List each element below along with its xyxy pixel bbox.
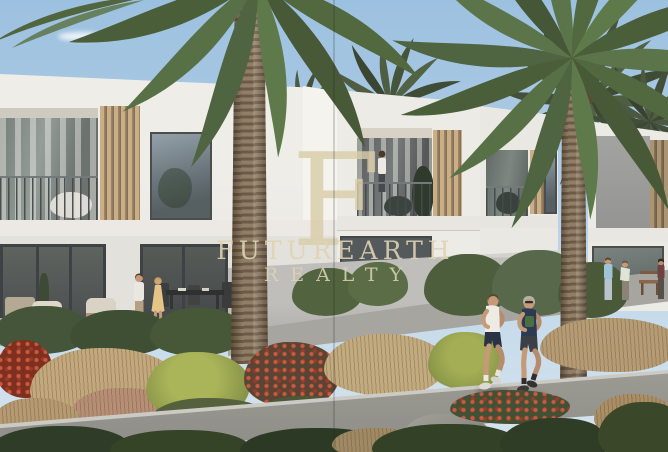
bench-leg [641, 283, 644, 295]
bench-seat [639, 280, 661, 284]
white-shirt [134, 282, 144, 301]
listing-photo: F FUTUREARTH REALTY [0, 0, 668, 452]
green-print [525, 316, 534, 327]
image-seam [333, 0, 335, 452]
front-leg [524, 350, 525, 378]
jeans [605, 279, 613, 300]
running-shoe [479, 382, 492, 390]
dark-red-top [658, 265, 665, 279]
palm-crown [382, 0, 668, 248]
table-leg [216, 295, 219, 309]
legs [658, 279, 664, 299]
beige-dress [152, 285, 165, 313]
chair [188, 285, 200, 305]
tan-grasses [540, 318, 668, 372]
blue-shirt [604, 264, 613, 279]
bench-back [640, 271, 660, 274]
dark-sock [533, 374, 535, 380]
sock [497, 370, 499, 376]
back-leg [498, 347, 502, 370]
tableware [202, 288, 209, 291]
floor-slab [0, 220, 337, 237]
jogger-white-shirt [472, 292, 512, 396]
hedge [150, 308, 245, 356]
pale-shirt [620, 267, 630, 282]
running-shoe [490, 375, 503, 385]
face [155, 279, 160, 284]
tableware [178, 288, 186, 291]
table-leg [170, 295, 173, 309]
corner-palm-frond [0, 0, 154, 60]
trousers [622, 281, 629, 300]
front-leg [486, 346, 489, 375]
sunglasses [525, 301, 533, 303]
jogger-navy-shirt [508, 294, 548, 400]
back-leg [535, 351, 539, 374]
resident-group [598, 254, 668, 306]
